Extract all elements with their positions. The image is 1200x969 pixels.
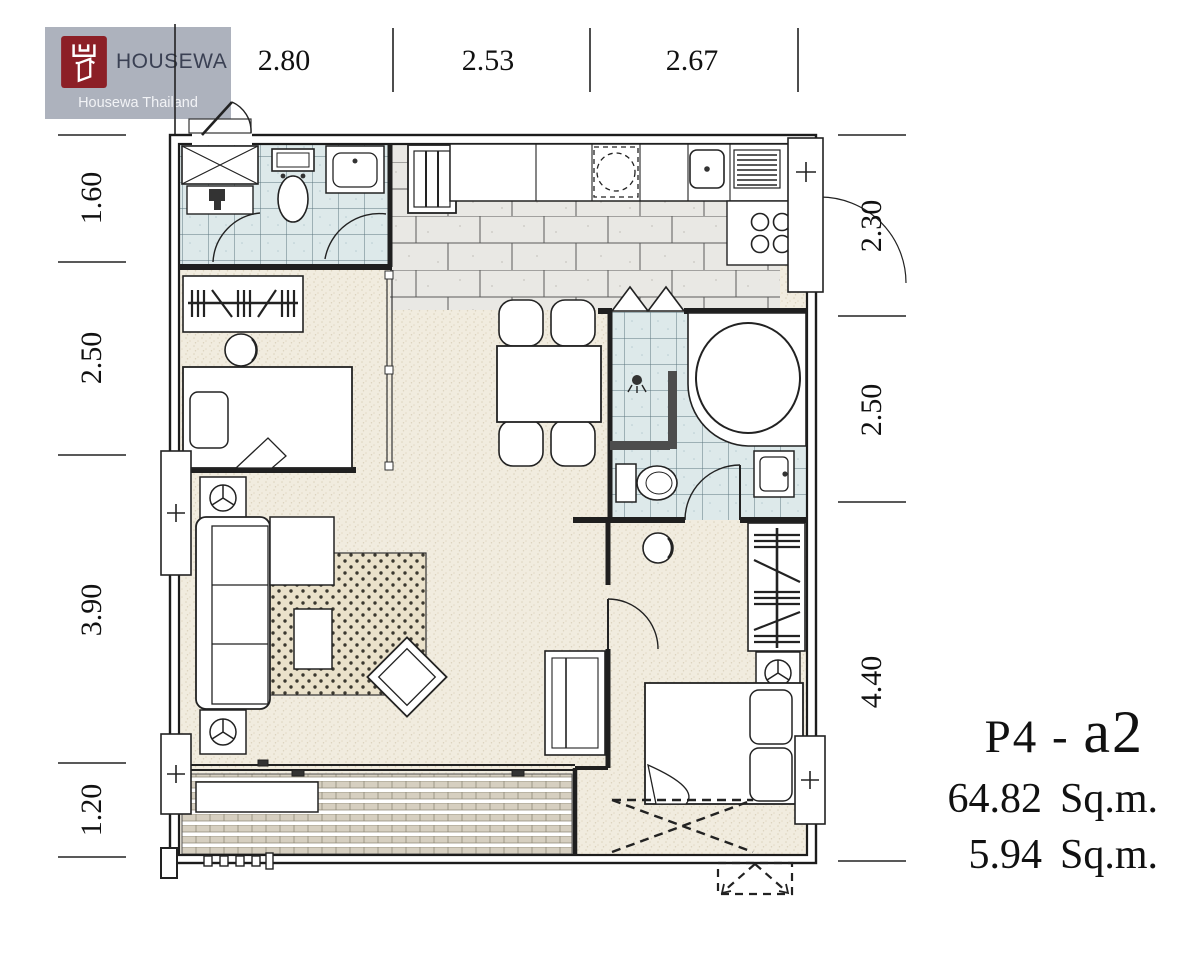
window-right-top bbox=[788, 138, 823, 292]
tv-console bbox=[545, 651, 605, 755]
dim-right-3: 4.40 bbox=[855, 656, 889, 709]
dim-top-3: 2.67 bbox=[666, 44, 719, 78]
dining-chair bbox=[499, 300, 543, 346]
sofa bbox=[196, 517, 270, 709]
bed-single bbox=[183, 367, 352, 468]
plant-pot-1 bbox=[200, 477, 246, 519]
plant-pot-2 bbox=[200, 710, 246, 754]
entry-threshold bbox=[189, 119, 251, 133]
area-interior: 64.82Sq.m. bbox=[947, 775, 1158, 823]
balcony-bench bbox=[196, 782, 318, 812]
cooktop bbox=[727, 201, 795, 265]
window-right-bottom bbox=[795, 736, 825, 824]
area-balcony: 5.94Sq.m. bbox=[947, 831, 1158, 879]
dim-right-1: 2.30 bbox=[855, 200, 889, 253]
dining-table bbox=[497, 346, 601, 422]
dining-chair bbox=[551, 420, 595, 466]
balcony-wall-end bbox=[161, 848, 177, 878]
vanity-sink-1 bbox=[326, 146, 384, 193]
dim-left-1: 1.60 bbox=[75, 172, 109, 225]
side-table-round bbox=[225, 334, 257, 366]
dim-right-2: 2.50 bbox=[855, 384, 889, 437]
pillow bbox=[190, 392, 228, 448]
dim-left-4: 1.20 bbox=[75, 784, 109, 837]
area-interior-value: 64.82 bbox=[947, 776, 1042, 822]
chaise-ottoman bbox=[270, 517, 334, 585]
bathtub bbox=[696, 323, 800, 433]
shower-screen bbox=[668, 371, 677, 449]
area-balcony-unit: Sq.m. bbox=[1060, 832, 1158, 878]
dim-top-2: 2.53 bbox=[462, 44, 515, 78]
water-heater-icon bbox=[209, 189, 225, 201]
dining-chair bbox=[499, 420, 543, 466]
stool bbox=[643, 533, 673, 563]
coffee-table bbox=[294, 609, 332, 669]
vent-grille bbox=[734, 150, 780, 188]
bed-double bbox=[645, 683, 803, 804]
dim-left-2: 2.50 bbox=[75, 332, 109, 385]
unit-code-suffix: a2 bbox=[1083, 699, 1144, 765]
pillow bbox=[750, 690, 792, 744]
wardrobe-2 bbox=[748, 523, 805, 651]
unit-code: P4 - a2 bbox=[947, 698, 1144, 767]
dining-chair bbox=[551, 300, 595, 346]
pillow bbox=[750, 748, 792, 801]
toilet-2 bbox=[616, 464, 677, 502]
window-left-1 bbox=[161, 451, 191, 575]
area-interior-unit: Sq.m. bbox=[1060, 776, 1158, 822]
vanity-sink-2 bbox=[754, 451, 794, 497]
ac-outdoor-marker bbox=[718, 863, 792, 894]
wardrobe-1 bbox=[183, 276, 303, 332]
floor-plan-page: { "logo": { "brand": "HOUSEWA", "subtitl… bbox=[0, 0, 1200, 969]
kitchen-sink bbox=[690, 150, 724, 188]
washing-machine bbox=[594, 147, 638, 197]
dim-left-3: 3.90 bbox=[75, 584, 109, 637]
area-balcony-value: 5.94 bbox=[968, 832, 1042, 878]
entry-door bbox=[189, 102, 252, 145]
dim-top-1: 2.80 bbox=[258, 44, 311, 78]
window-left-2 bbox=[161, 734, 191, 814]
unit-code-prefix: P4 - bbox=[985, 711, 1084, 763]
unit-label-block: P4 - a2 64.82Sq.m. 5.94Sq.m. bbox=[947, 698, 1158, 879]
shower-screen bbox=[610, 441, 670, 450]
